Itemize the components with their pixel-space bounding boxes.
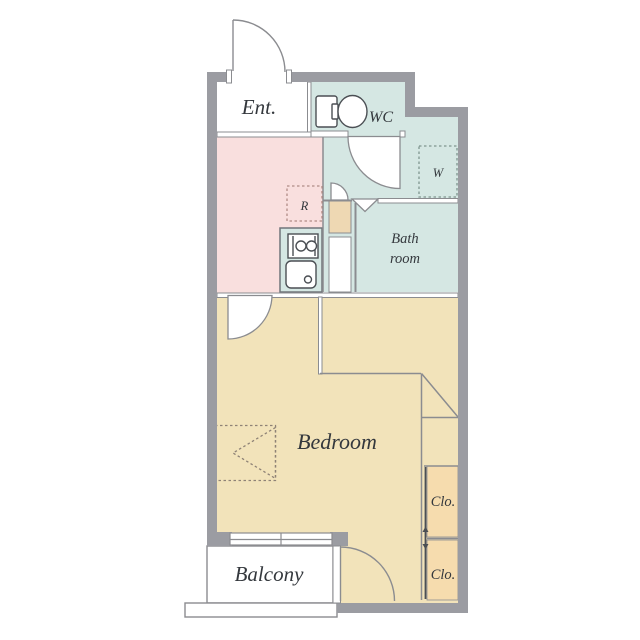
entrance-label: Ent. xyxy=(241,95,276,119)
refrigerator-label: R xyxy=(300,199,309,213)
wall-wc-bottom-left xyxy=(311,131,348,137)
sink-icon xyxy=(286,261,316,288)
wall-window-stub-left xyxy=(207,532,232,546)
floor-plan: Ent. WC W R Bath room Bedroom Clo. Clo. … xyxy=(0,0,640,640)
stove-icon xyxy=(288,234,318,258)
pipe-space xyxy=(329,237,351,292)
closet-lower-label: Clo. xyxy=(431,567,456,583)
balcony-label: Balcony xyxy=(235,562,304,586)
wall-right xyxy=(458,107,468,613)
bath-label-line2: room xyxy=(390,251,420,267)
toilet-label: WC xyxy=(369,109,393,126)
wall-bottom xyxy=(337,603,468,613)
washer-label: W xyxy=(433,166,445,180)
bath-label-line1: Bath xyxy=(391,231,418,247)
entrance-door xyxy=(233,20,285,72)
balcony-window xyxy=(230,533,332,545)
bedroom-label: Bedroom xyxy=(297,429,377,454)
wall-window-stub-right xyxy=(330,532,348,546)
closet-upper-label: Clo. xyxy=(431,494,456,510)
wall-washroom-bath xyxy=(378,199,458,204)
entrance-step xyxy=(217,132,311,137)
balcony-slab xyxy=(185,603,337,617)
wall-wc-bottom-right xyxy=(400,131,405,137)
utility-box xyxy=(329,200,351,233)
entrance-opening xyxy=(227,70,292,83)
wall-entrance-wc xyxy=(308,82,312,132)
wall-bedroom-nook xyxy=(319,297,323,374)
toilet-icon xyxy=(316,96,367,128)
wall-left xyxy=(207,72,217,546)
